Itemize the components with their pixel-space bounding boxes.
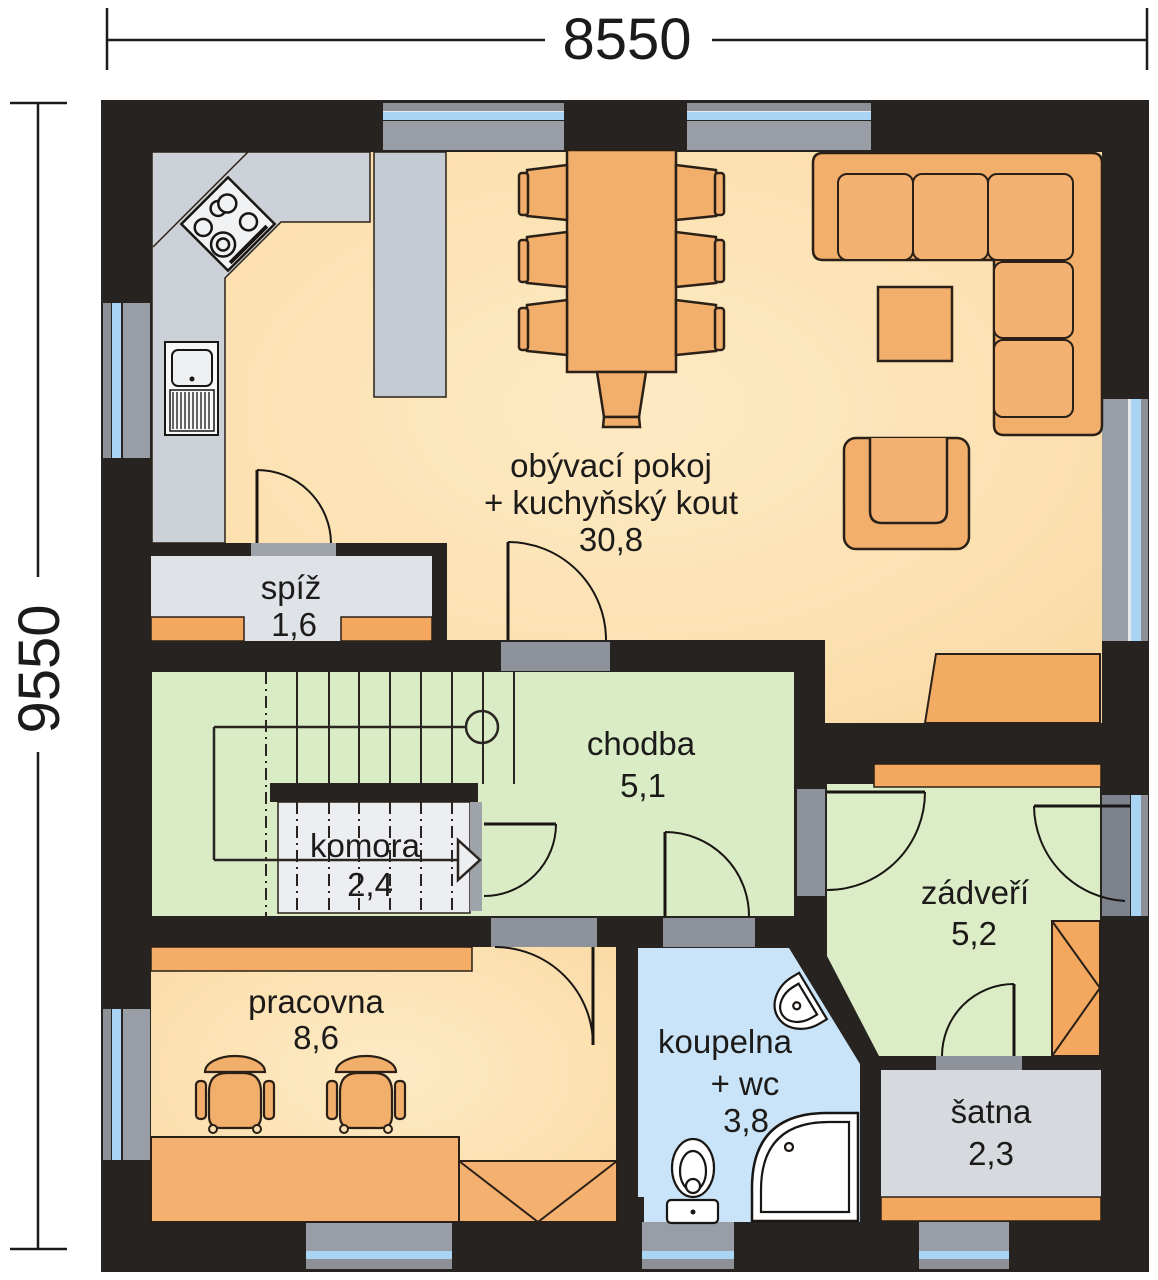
svg-text:pracovna: pracovna bbox=[248, 983, 384, 1020]
svg-text:obývací pokoj: obývací pokoj bbox=[510, 447, 712, 484]
svg-text:zádveří: zádveří bbox=[921, 874, 1029, 911]
svg-text:1,6: 1,6 bbox=[271, 606, 317, 643]
svg-text:chodba: chodba bbox=[587, 725, 696, 762]
svg-text:2,4: 2,4 bbox=[347, 866, 393, 903]
svg-text:komora: komora bbox=[310, 827, 421, 864]
svg-text:koupelna: koupelna bbox=[658, 1023, 793, 1060]
svg-text:šatna: šatna bbox=[951, 1093, 1032, 1130]
svg-text:8550: 8550 bbox=[562, 7, 691, 72]
svg-text:spíž: spíž bbox=[261, 569, 322, 606]
svg-text:+ wc: + wc bbox=[711, 1065, 780, 1102]
svg-text:+ kuchyňský kout: + kuchyňský kout bbox=[484, 484, 738, 521]
svg-text:2,3: 2,3 bbox=[968, 1135, 1014, 1172]
svg-text:30,8: 30,8 bbox=[579, 521, 643, 558]
svg-text:9550: 9550 bbox=[7, 604, 72, 733]
svg-text:5,2: 5,2 bbox=[951, 915, 997, 952]
svg-text:5,1: 5,1 bbox=[620, 767, 666, 804]
svg-text:8,6: 8,6 bbox=[293, 1019, 339, 1056]
svg-text:3,8: 3,8 bbox=[723, 1102, 769, 1139]
